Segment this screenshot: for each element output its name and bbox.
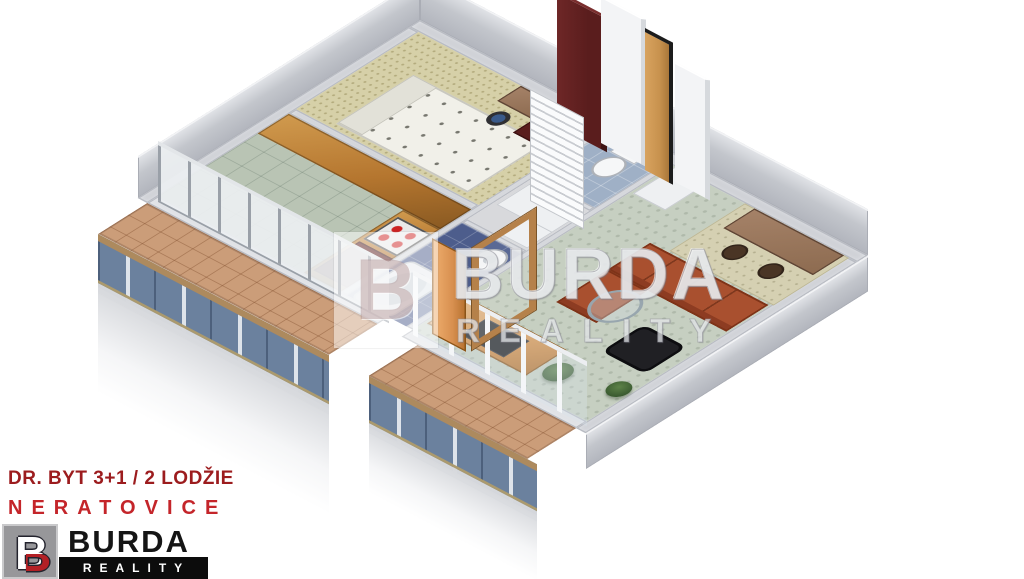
caption-city: NERATOVICE xyxy=(8,497,234,520)
brand-logo-mark: B B xyxy=(2,524,58,579)
hall-orange-cabinet xyxy=(432,238,466,352)
caption: DR. BYT 3+1 / 2 LODŽIE NERATOVICE xyxy=(8,468,234,520)
brand-name: BURDA xyxy=(68,524,190,560)
brand-subtitle-bar: REALITY xyxy=(59,557,208,579)
brand-subtitle: REALITY xyxy=(83,561,190,575)
living-white-shelf-tall xyxy=(675,62,710,200)
screenshot-root: B BURDA REALITY DR. BYT 3+1 / 2 LODŽIE N… xyxy=(0,0,1024,579)
white-tall-cabinet xyxy=(601,0,646,167)
wooden-entry-door xyxy=(645,28,673,185)
brand-logo: B B BURDA REALITY xyxy=(2,524,208,579)
caption-title: DR. BYT 3+1 / 2 LODŽIE xyxy=(8,468,234,490)
brand-monogram: B B xyxy=(15,528,51,578)
